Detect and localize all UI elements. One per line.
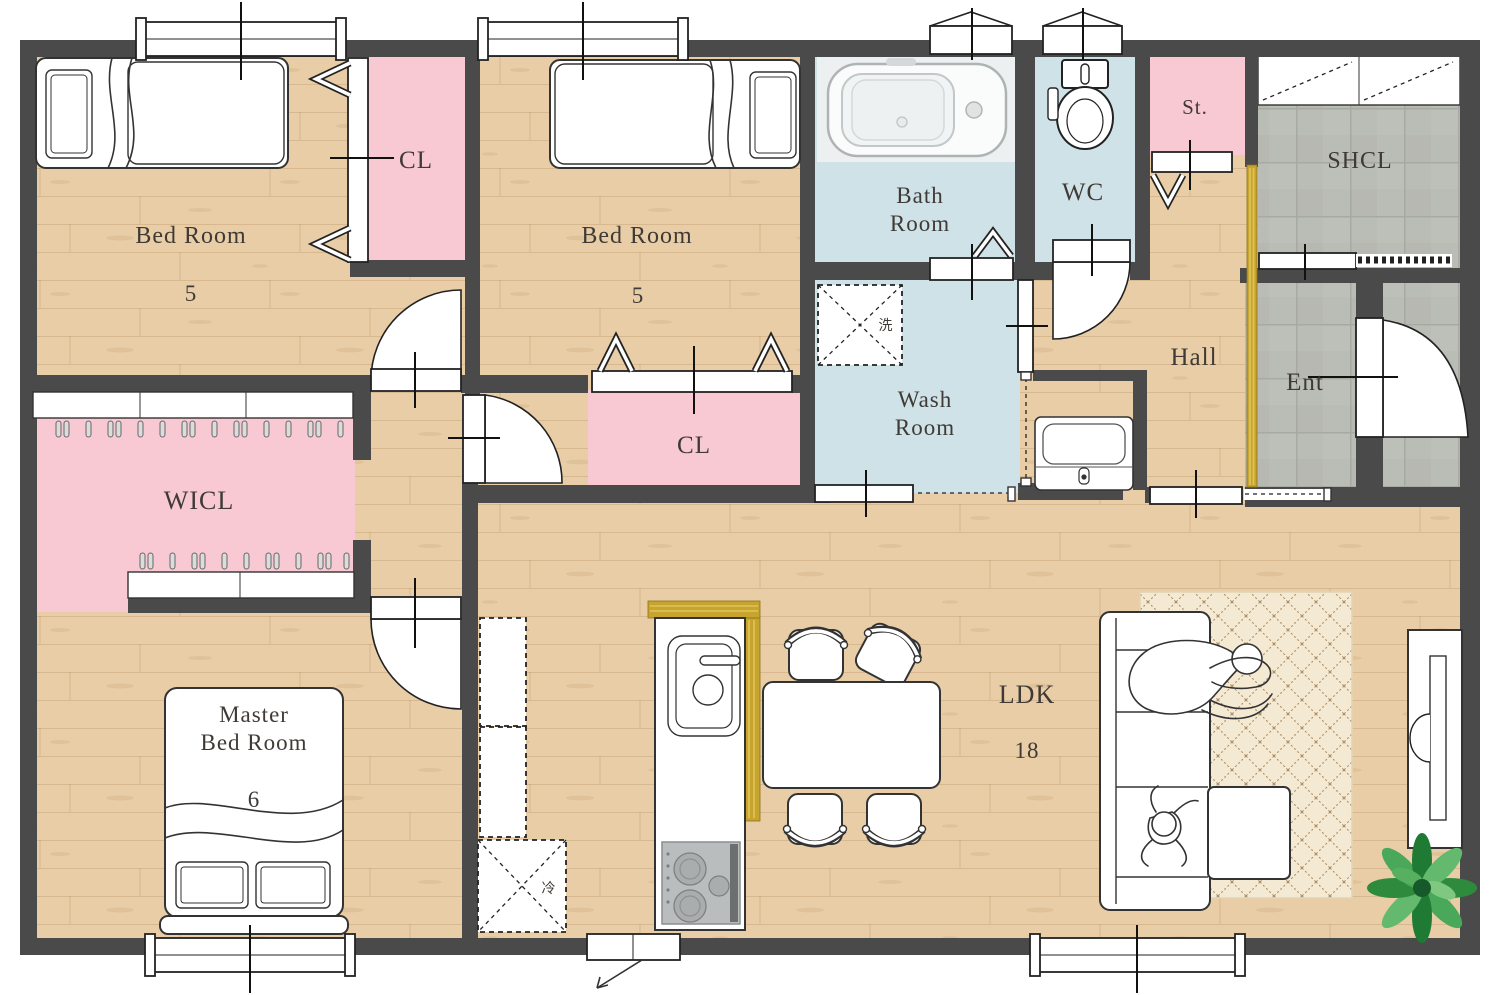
dining-chair xyxy=(785,630,848,680)
bed-single-1 xyxy=(36,58,288,168)
label-washroom-2: Room xyxy=(895,415,955,440)
label-bathroom-1: Bath xyxy=(896,183,943,208)
label-entrance: Ent xyxy=(1286,369,1324,396)
stove xyxy=(662,842,740,924)
label-closet1: CL xyxy=(399,147,433,174)
fridge-kanji: 冷 xyxy=(542,881,557,897)
cupboard-dashed xyxy=(480,727,526,837)
kitchen-counter-side-edge xyxy=(744,618,760,821)
label-master-2: Bed Room xyxy=(200,730,307,755)
cupboard-dashed xyxy=(480,618,526,726)
refrigerator-dashed: 冷 xyxy=(478,840,566,932)
window-bathroom xyxy=(930,8,1012,60)
label-bathroom-2: Room xyxy=(890,211,950,236)
bed-single-2 xyxy=(550,60,800,168)
label-master-size: 6 xyxy=(248,787,261,812)
shoe-closet-shelf xyxy=(1258,55,1460,105)
plant-icon xyxy=(1367,833,1477,943)
label-closet2: CL xyxy=(677,432,711,459)
kitchen-counter-top-edge xyxy=(648,601,760,618)
dining-chair xyxy=(784,794,847,844)
label-bedroom1-size: 5 xyxy=(185,281,198,306)
label-hall: Hall xyxy=(1170,344,1217,371)
label-bedroom1: Bed Room xyxy=(135,223,246,249)
wash-basin xyxy=(1035,417,1133,490)
vent-window-kitchen xyxy=(587,934,680,988)
dining-chair xyxy=(863,794,926,844)
label-bedroom2-size: 5 xyxy=(632,283,645,308)
floor-plan-drawing: 冷 洗 xyxy=(0,0,1500,995)
label-master-1: Master xyxy=(219,702,289,727)
window-wc xyxy=(1043,8,1122,60)
entrance-step-edge xyxy=(1247,165,1257,487)
label-ldk: LDK xyxy=(999,680,1055,709)
tv-board xyxy=(1408,630,1462,848)
wicl-floor-opening xyxy=(30,596,130,612)
floor-plan-page: 冷 洗 xyxy=(0,0,1500,995)
label-storage: St. xyxy=(1182,95,1208,119)
label-wc: WC xyxy=(1062,179,1104,206)
label-wicl: WICL xyxy=(164,486,234,515)
washing-machine-dashed: 洗 xyxy=(818,285,902,365)
washer-kanji: 洗 xyxy=(879,318,894,334)
label-ldk-size: 18 xyxy=(1015,738,1040,763)
tv-icon xyxy=(1430,656,1446,820)
sofa-ottoman xyxy=(1208,787,1290,879)
bathtub xyxy=(828,58,1006,156)
faucet-icon xyxy=(700,656,740,665)
label-washroom-1: Wash xyxy=(898,387,953,412)
label-shoe-closet: SHCL xyxy=(1327,148,1392,174)
label-bedroom2: Bed Room xyxy=(581,223,692,249)
dining-table xyxy=(763,682,940,788)
